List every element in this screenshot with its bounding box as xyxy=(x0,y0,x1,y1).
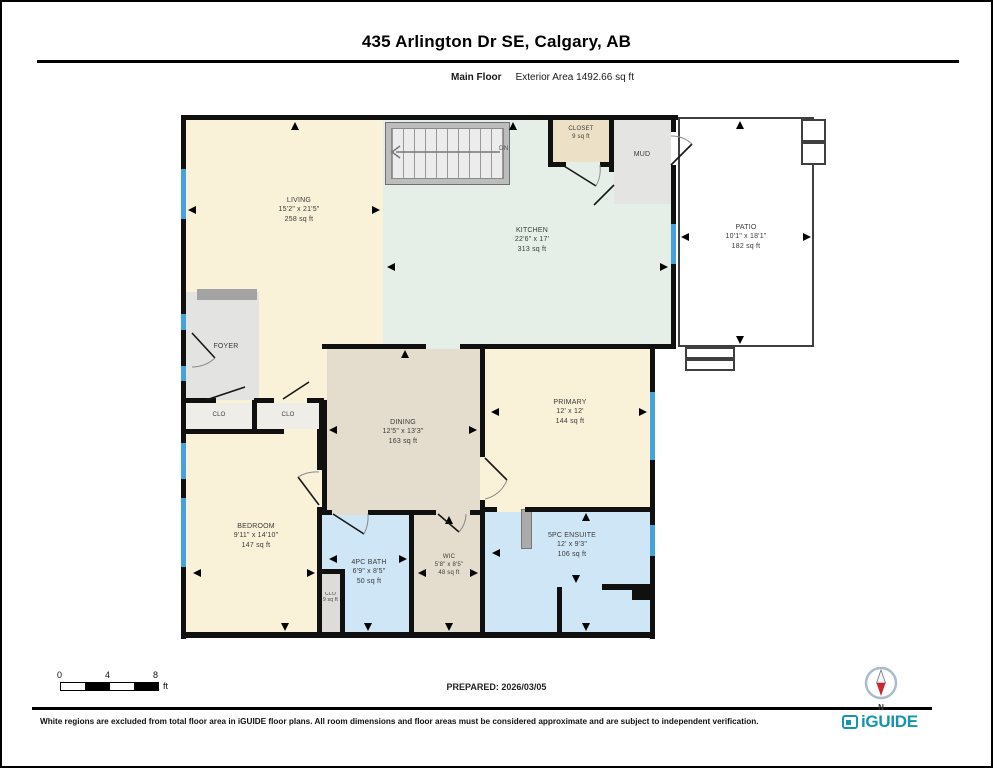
window xyxy=(650,524,655,557)
window xyxy=(181,313,186,331)
room-label-closet: CLOSET 9 sq ft xyxy=(551,125,611,141)
room-area: 9 sq ft xyxy=(321,598,340,604)
wall-segment xyxy=(460,344,676,349)
wall-segment xyxy=(254,398,274,403)
room-area: 258 sq ft xyxy=(254,215,344,224)
window xyxy=(650,391,655,461)
room-area: 50 sq ft xyxy=(324,577,414,586)
room-name: LIVING xyxy=(254,196,344,205)
room-area: 9 sq ft xyxy=(551,133,611,141)
room-area: 313 sq ft xyxy=(487,245,577,254)
wall-segment xyxy=(557,587,562,632)
wall-segment xyxy=(181,115,678,120)
wall-segment xyxy=(322,344,426,349)
prepared-date: PREPARED: 2026/03/05 xyxy=(2,682,991,692)
room-name: BEDROOM xyxy=(211,522,301,531)
wall-segment xyxy=(600,162,614,167)
wall-segment xyxy=(181,632,655,638)
floor-subtitle: Main Floor Exterior Area 1492.66 sq ft xyxy=(451,72,634,83)
room-label-patio: PATIO 10'1" x 18'1" 182 sq ft xyxy=(701,223,791,251)
compass-icon: N xyxy=(863,665,899,713)
room-label-mud: MUD xyxy=(612,150,672,159)
scale-tick: 0 xyxy=(57,670,62,680)
exterior-area-label: Exterior Area 1492.66 sq ft xyxy=(516,72,634,83)
wall-segment xyxy=(548,162,566,167)
wall-segment xyxy=(525,507,655,512)
room-dims: 6'9" x 8'5" xyxy=(324,567,414,576)
floorplan-page: 435 Arlington Dr SE, Calgary, AB Main Fl… xyxy=(0,0,993,768)
compass-north-label: N xyxy=(878,703,884,712)
room-label-dining: DINING 12'5" x 13'3" 163 sq ft xyxy=(358,418,448,446)
scale-tick: 4 xyxy=(105,670,110,680)
room-dims: 9'11" x 14'10" xyxy=(211,531,301,540)
room-name: CLOSET xyxy=(551,125,611,133)
patio-step xyxy=(801,142,826,165)
room-label-kitchen: KITCHEN 22'6" x 17' 313 sq ft xyxy=(487,226,577,254)
room-dims: 10'1" x 18'1" xyxy=(701,232,791,241)
wall-segment xyxy=(186,398,216,403)
room-area: 182 sq ft xyxy=(701,242,791,251)
wall-segment xyxy=(671,115,676,132)
room-dims: 12' x 12' xyxy=(525,407,615,416)
wall-segment xyxy=(480,344,485,457)
room-ensuite xyxy=(485,512,650,632)
room-name: PATIO xyxy=(701,223,791,232)
wall-segment xyxy=(650,344,655,639)
scale-tick: 8 xyxy=(153,670,158,680)
wall-segment xyxy=(317,434,322,470)
room-name: CLO xyxy=(189,411,249,419)
room-label-bedroom: BEDROOM 9'11" x 14'10" 147 sq ft xyxy=(211,522,301,550)
iguide-logo-text: iGUIDE xyxy=(861,712,918,732)
window xyxy=(181,497,186,568)
iguide-logo-dot xyxy=(846,720,851,725)
room-name: MUD xyxy=(612,150,672,159)
exterior-patch xyxy=(655,349,678,639)
window xyxy=(181,442,186,480)
disclaimer-text: White regions are excluded from total fl… xyxy=(40,717,770,726)
room-area: 106 sq ft xyxy=(527,550,617,559)
room-name: KITCHEN xyxy=(487,226,577,235)
patio-step xyxy=(685,359,735,371)
room-label-clo-right: CLO xyxy=(258,411,318,419)
room-label-bath: 4PC BATH 6'9" x 8'5" 50 sq ft xyxy=(324,558,414,586)
room-name: PRIMARY xyxy=(525,398,615,407)
header-rule xyxy=(37,60,959,63)
scale-ticks: 0 4 8 xyxy=(60,670,190,681)
wall-segment xyxy=(632,590,650,600)
foyer-shelf xyxy=(197,289,257,300)
room-mud xyxy=(614,120,671,204)
patio-step xyxy=(685,347,735,359)
footer-rule xyxy=(32,707,932,710)
room-name: 4PC BATH xyxy=(324,558,414,567)
room-name: 5PC ENSUITE xyxy=(527,531,617,540)
room-area: 147 sq ft xyxy=(211,541,301,550)
room-label-clo-small: CLO 9 sq ft xyxy=(321,592,340,612)
window xyxy=(671,223,676,265)
room-dims: 12'5" x 13'3" xyxy=(358,427,448,436)
room-dims: 22'6" x 17' xyxy=(487,235,577,244)
wall-segment xyxy=(186,429,284,434)
iguide-logo: iGUIDE xyxy=(842,712,918,732)
room-label-wic: WIC 5'8" x 8'5" 48 sq ft xyxy=(404,553,494,577)
floor-label: Main Floor xyxy=(451,72,502,83)
room-name: FOYER xyxy=(196,342,256,351)
stairs-direction-label: DN xyxy=(499,145,508,152)
wall-segment xyxy=(322,510,332,515)
window xyxy=(181,365,186,382)
window xyxy=(181,168,186,220)
room-label-foyer: FOYER xyxy=(196,342,256,351)
room-label-ensuite: 5PC ENSUITE 12' x 9'3" 106 sq ft xyxy=(527,531,617,559)
room-name: WIC xyxy=(404,553,494,561)
patio-step xyxy=(801,119,826,142)
room-name: DINING xyxy=(358,418,448,427)
wall-segment xyxy=(485,507,497,512)
room-name: CLO xyxy=(258,411,318,419)
room-dims: 12' x 9'3" xyxy=(527,540,617,549)
stair-treads xyxy=(391,128,504,179)
room-label-living: LIVING 15'2" x 21'5" 258 sq ft xyxy=(254,196,344,224)
room-label-primary: PRIMARY 12' x 12' 144 sq ft xyxy=(525,398,615,426)
wall-segment xyxy=(368,510,436,515)
room-area: 48 sq ft xyxy=(404,569,494,577)
staircase xyxy=(385,122,510,185)
room-area: 163 sq ft xyxy=(358,437,448,446)
page-title: 435 Arlington Dr SE, Calgary, AB xyxy=(2,32,991,52)
room-dims: 5'8" x 8'5" xyxy=(404,561,494,569)
iguide-logo-icon xyxy=(842,715,858,729)
room-dims: 15'2" x 21'5" xyxy=(254,205,344,214)
room-area: 144 sq ft xyxy=(525,417,615,426)
room-label-clo-left: CLO xyxy=(189,411,249,419)
